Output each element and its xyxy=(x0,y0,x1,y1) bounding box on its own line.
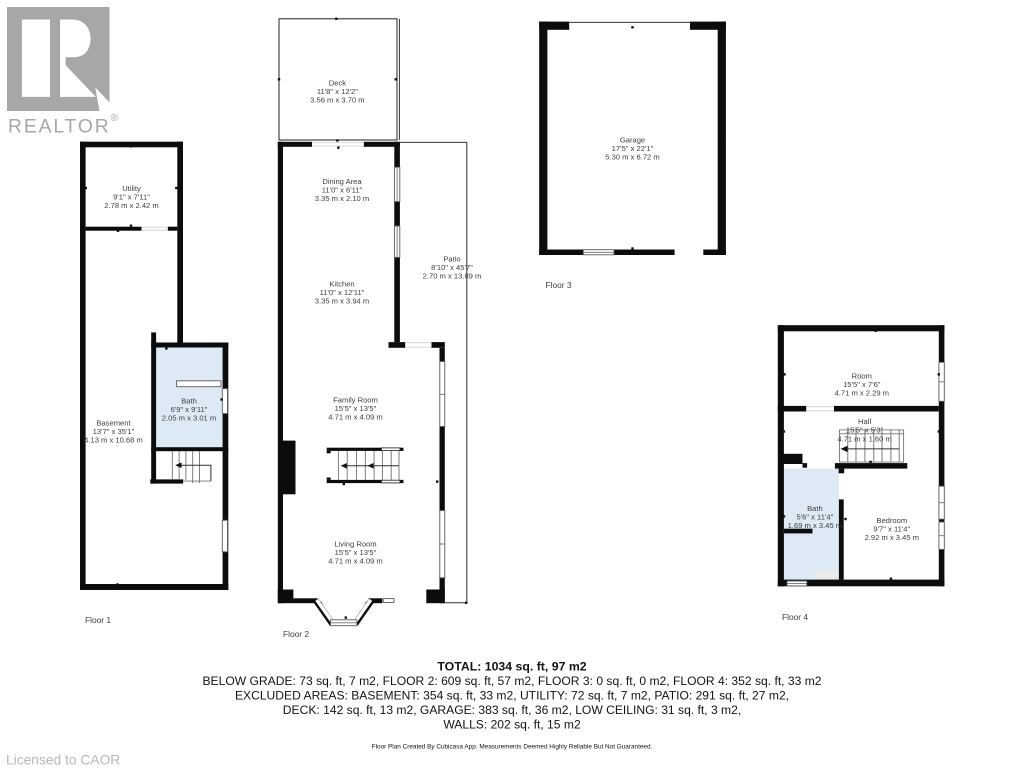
svg-text:Floor 1: Floor 1 xyxy=(85,615,111,625)
svg-text:4.71 m x 2.29 m: 4.71 m x 2.29 m xyxy=(835,389,889,398)
svg-text:4.71 m x 1.60 m: 4.71 m x 1.60 m xyxy=(837,434,891,443)
svg-text:Licensed to CAOR: Licensed to CAOR xyxy=(6,753,120,768)
svg-text:®: ® xyxy=(111,113,119,124)
svg-text:EXCLUDED AREAS: BASEMENT: 354: EXCLUDED AREAS: BASEMENT: 354 sq. ft, 33… xyxy=(235,689,789,703)
svg-text:DECK: 142 sq. ft, 13 m2, GARAG: DECK: 142 sq. ft, 13 m2, GARAGE: 383 sq.… xyxy=(283,703,741,717)
svg-text:4.71 m x 4.09 m: 4.71 m x 4.09 m xyxy=(328,413,382,422)
svg-text:5.30 m x 6.72 m: 5.30 m x 6.72 m xyxy=(605,153,659,162)
svg-text:3.35 m x 2.10 m: 3.35 m x 2.10 m xyxy=(315,194,369,203)
svg-text:Floor 4: Floor 4 xyxy=(782,612,808,622)
svg-text:TOTAL: 1034 sq. ft, 97 m2: TOTAL: 1034 sq. ft, 97 m2 xyxy=(437,660,586,674)
svg-text:15'5" x 5'3": 15'5" x 5'3" xyxy=(846,426,884,435)
svg-text:Floor Plan Created By Cubicasa: Floor Plan Created By Cubicasa App. Meas… xyxy=(372,744,653,751)
svg-text:Floor 3: Floor 3 xyxy=(546,280,572,290)
svg-text:4.13 m x 10.68 m: 4.13 m x 10.68 m xyxy=(84,436,143,445)
svg-text:Hall: Hall xyxy=(858,417,871,426)
svg-text:2.92 m x 3.45 m: 2.92 m x 3.45 m xyxy=(865,533,919,542)
svg-text:1.69 m x 3.45 m: 1.69 m x 3.45 m xyxy=(788,521,842,530)
svg-text:2.78 m x 2.42 m: 2.78 m x 2.42 m xyxy=(104,201,158,210)
svg-text:REALTOR: REALTOR xyxy=(8,117,111,138)
svg-text:2.70 m x 13.89 m: 2.70 m x 13.89 m xyxy=(423,272,482,281)
svg-text:3.35 m x 3.94 m: 3.35 m x 3.94 m xyxy=(315,297,369,306)
svg-text:WALLS: 202 sq. ft, 15 m2: WALLS: 202 sq. ft, 15 m2 xyxy=(443,718,581,732)
svg-text:2.05 m x 3.01 m: 2.05 m x 3.01 m xyxy=(162,414,216,423)
svg-text:4.71 m x 4.09 m: 4.71 m x 4.09 m xyxy=(328,557,382,566)
svg-text:3.56 m x 3.70 m: 3.56 m x 3.70 m xyxy=(310,96,364,105)
svg-text:Floor 2: Floor 2 xyxy=(283,629,309,639)
svg-text:BELOW GRADE: 73 sq. ft, 7 m2,: BELOW GRADE: 73 sq. ft, 7 m2, FLOOR 2: 6… xyxy=(202,674,821,688)
